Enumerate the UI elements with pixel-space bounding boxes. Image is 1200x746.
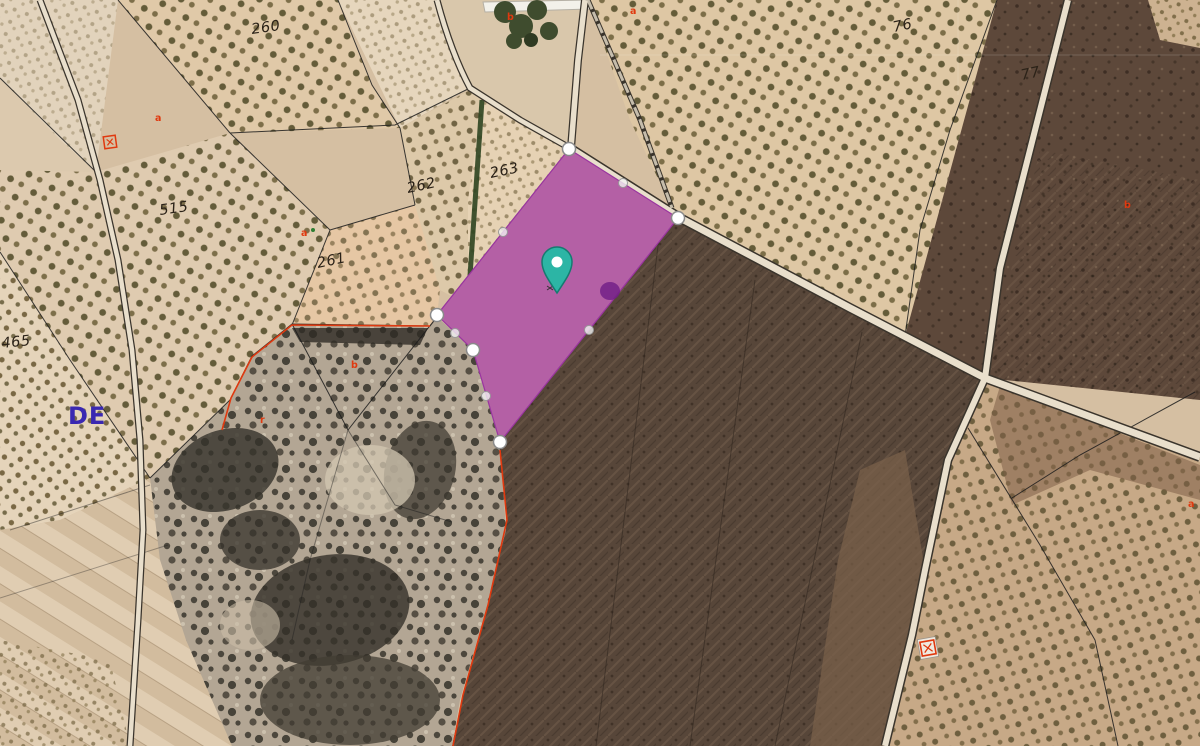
midpoint-handle[interactable] (619, 179, 628, 188)
subparcel-letter: a (155, 113, 161, 124)
fields-layer (0, 0, 1200, 746)
midpoint-handle[interactable] (499, 228, 508, 237)
vertex-handle[interactable] (431, 309, 444, 322)
map-viewport[interactable]: 260 515 262 263 261 465 76 77 a a b a b … (0, 0, 1200, 746)
parcel-label-465: 465 (1, 333, 32, 352)
subparcel-letter: a (1188, 499, 1194, 510)
subparcel-letter: a (301, 228, 307, 239)
midpoint-handle[interactable] (585, 326, 594, 335)
vertex-handle[interactable] (467, 344, 480, 357)
midpoint-handle[interactable] (451, 329, 460, 338)
subparcel-letter: b (1124, 200, 1131, 211)
subparcel-letter: r (260, 415, 265, 426)
subparcel-letter: b (507, 12, 514, 23)
parcel-dark-spot (600, 282, 620, 300)
vertex-handle[interactable] (672, 212, 685, 225)
midpoint-handle[interactable] (482, 392, 491, 401)
area-label-de: DE (68, 402, 106, 430)
map-canvas[interactable]: 260 515 262 263 261 465 76 77 a a b a b … (0, 0, 1200, 746)
vertex-handle[interactable] (494, 436, 507, 449)
subparcel-letter: a (630, 6, 636, 17)
vertex-handle[interactable] (563, 143, 576, 156)
green-dot-marker (311, 228, 315, 232)
subparcel-letter: b (351, 360, 358, 371)
